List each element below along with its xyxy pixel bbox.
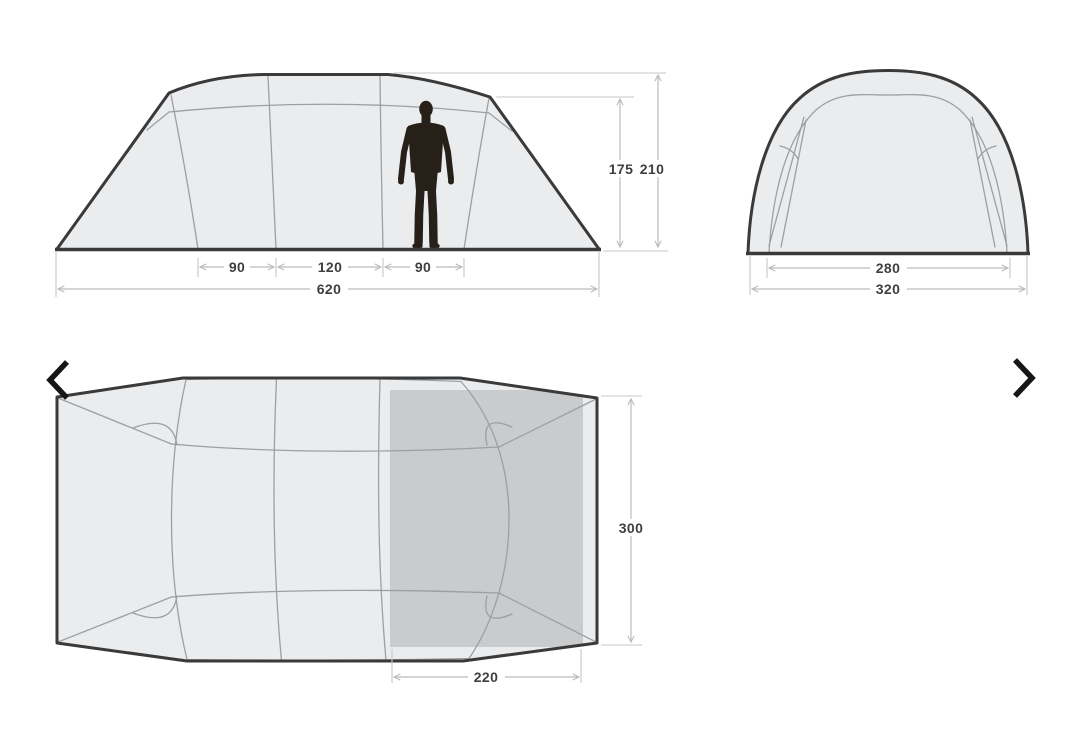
carousel-next-button[interactable] (1000, 348, 1044, 408)
dim-section-left-label: 90 (229, 259, 245, 275)
dim-floor-depth-label: 300 (619, 520, 644, 536)
side-width-dimensions: 90 120 90 620 (56, 252, 599, 297)
carousel-prev-button[interactable] (36, 350, 80, 410)
floor-plan: 300 220 (57, 378, 650, 685)
end-view-tent-body (748, 71, 1028, 254)
end-width-dimensions: 280 320 (750, 256, 1027, 297)
dim-inner-height-label: 175 (609, 161, 634, 177)
floor-depth-dimension: 300 (601, 396, 650, 645)
dim-total-width-label: 620 (317, 281, 342, 297)
dim-peak-height-label: 210 (640, 161, 665, 177)
dim-section-middle-label: 120 (318, 259, 343, 275)
side-view-tent-body (57, 75, 599, 250)
tent-dimensions-diagram: 90 120 90 620 175 210 (0, 0, 1080, 731)
dim-end-outer-width-label: 320 (876, 281, 901, 297)
end-view: 280 320 (746, 71, 1030, 298)
dim-section-right-label: 90 (415, 259, 431, 275)
chevron-right-icon (1007, 354, 1037, 402)
dim-cabin-width-label: 220 (474, 669, 499, 685)
tent-dimension-diagram-page: 90 120 90 620 175 210 (0, 0, 1080, 731)
side-view: 90 120 90 620 175 210 (55, 73, 668, 297)
dim-end-inner-width-label: 280 (876, 260, 901, 276)
chevron-left-icon (43, 356, 73, 404)
